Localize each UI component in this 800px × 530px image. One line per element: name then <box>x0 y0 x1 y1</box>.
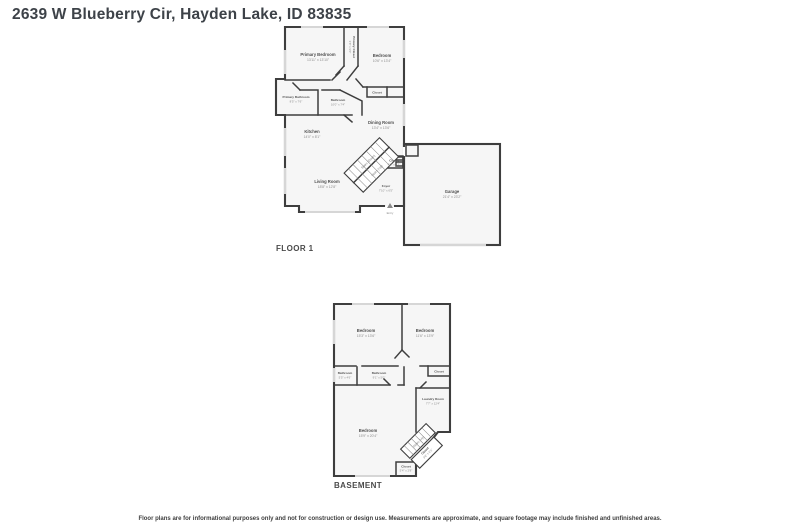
room-label-bedroom: Bedroom <box>373 53 392 58</box>
room-dims-stair-closet: 4'0" x 2'3" <box>388 163 401 167</box>
room-label-garage: Garage <box>445 189 460 194</box>
room-label-laundry-room: Laundry Room <box>422 397 444 401</box>
room-dims-basement-bedroom-left: 15'3" x 13'6" <box>357 334 376 338</box>
room-dims-basement-bedroom-right: 11'6" x 13'9" <box>416 334 435 338</box>
room-label-basement-bedroom-right: Bedroom <box>416 328 435 333</box>
room-label-kitchen: Kitchen <box>304 129 320 134</box>
room-label-bathroom: Bathroom <box>331 98 346 102</box>
room-dims-bedroom: 10'6" x 13'4" <box>373 59 392 63</box>
room-dims-primary-closet: 3'8" x 9'0" <box>348 41 352 54</box>
room-dims-bathroom: 10'0" x 7'4" <box>331 103 345 107</box>
room-label-basement-bedroom-lower: Bedroom <box>359 428 378 433</box>
room-label-basement-bedroom-left: Bedroom <box>357 328 376 333</box>
basement-plan: Stairs (Up) Closet 3'8" x 6'1" Bedroom 1… <box>326 296 458 484</box>
room-label-basement-bathroom: Bathroom <box>372 371 387 375</box>
room-dims-primary-bedroom: 13'11" x 13'10" <box>307 58 330 62</box>
floor1-plan: Stairs (Down) Stairs (Up) Primary Bedroo… <box>268 18 508 254</box>
room-label-basement-bathroom-small: Bathroom <box>338 371 353 375</box>
room-dims-basement-closet-bottom: 5'4" x 2'8" <box>400 469 413 473</box>
disclaimer-text: Floor plans are for informational purpos… <box>0 516 800 522</box>
room-dims-foyer: 7'10" x 6'5" <box>379 189 393 193</box>
room-dims-kitchen: 14'0" x 8'1" <box>304 135 322 139</box>
room-dims-basement-bathroom-small: 5'5" x 4'6" <box>339 376 352 380</box>
room-label-dining-room: Dining Room <box>368 120 394 125</box>
room-dims-garage: 21'4" x 23'2" <box>443 195 462 199</box>
floorplan-page: 2639 W Blueberry Cir, Hayden Lake, ID 83… <box>0 0 800 530</box>
room-label-basement-closet-right: Closet <box>434 370 443 374</box>
room-label-primary-bedroom: Primary Bedroom <box>300 52 335 57</box>
entry-label: Entry <box>387 211 394 215</box>
room-label-foyer: Foyer <box>382 184 391 188</box>
room-dims-living-room: 18'8" x 12'8" <box>318 185 337 189</box>
room-dims-dining-room: 13'4" x 13'6" <box>372 126 391 130</box>
floor1-title: FLOOR 1 <box>276 244 313 253</box>
room-dims-primary-bathroom: 8'5" x 7'6" <box>290 100 303 104</box>
basement-title: BASEMENT <box>334 481 382 490</box>
room-dims-basement-bedroom-lower: 15'9" x 20'4" <box>359 434 378 438</box>
room-label-primary-bathroom: Primary Bathroom <box>283 95 310 99</box>
room-dims-basement-bathroom: 9'1" x 5'0" <box>373 376 386 380</box>
room-label-bedroom-closet: Closet <box>372 91 381 95</box>
room-dims-laundry-room: 7'7" x 12'4" <box>426 402 440 406</box>
room-label-living-room: Living Room <box>314 179 340 184</box>
